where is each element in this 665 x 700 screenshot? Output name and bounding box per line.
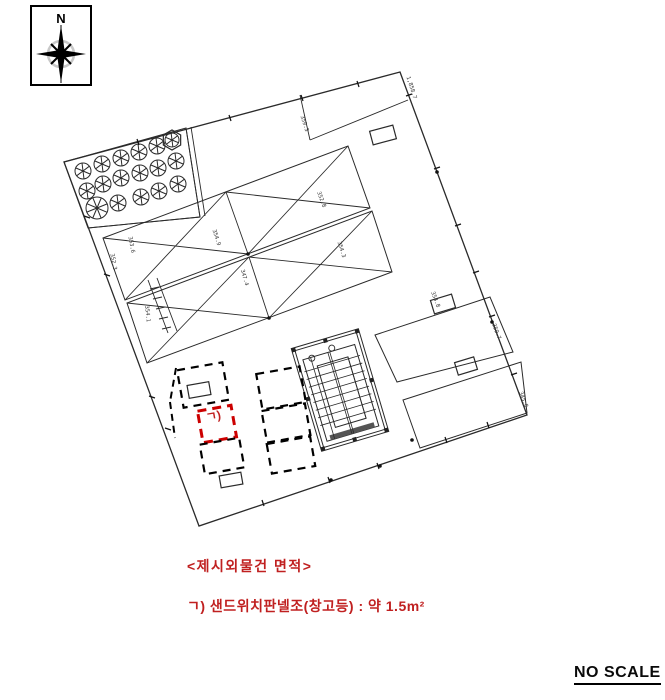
survey-dot [329, 478, 333, 482]
tree-icon [131, 144, 147, 160]
note-title: <제시외물건 면적> [187, 556, 312, 576]
tree-icon [94, 156, 110, 172]
tree-icon [79, 183, 95, 199]
plan-line [226, 192, 248, 254]
dimension-label: 354.9 [211, 229, 222, 247]
plan-line [310, 100, 408, 140]
tree-icon [75, 163, 91, 179]
small-structure [187, 382, 211, 399]
tree-icon [168, 153, 184, 169]
dashed-outbuilding-box [177, 362, 229, 407]
tree-icon [95, 176, 111, 192]
parcel-p2 [403, 362, 527, 448]
dimension-label: 347.4 [239, 269, 250, 287]
site-plan-drawing: 1,858.7359.3354.9352.8354.3347.4359.7345… [0, 0, 665, 700]
dimension-label: 354.1 [143, 305, 151, 322]
no-scale-label: NO SCALE [574, 664, 661, 685]
plan-line [159, 317, 168, 319]
main-building [291, 329, 389, 451]
tree-icon [132, 165, 148, 181]
tree-icon [86, 197, 108, 219]
plan-line [157, 278, 177, 331]
tree-band [64, 128, 200, 228]
small-structure [370, 125, 397, 145]
dimension-label: 359.7 [490, 323, 501, 341]
dashed-outbuilding-box [200, 438, 245, 474]
tree-icon [113, 170, 129, 186]
appraisal-site-plan-page: N 1,858.7359.3354.9352.8354.3347.4359.73… [0, 0, 665, 700]
small-structure [219, 472, 243, 488]
dimension-label: 353.6 [127, 236, 136, 253]
dimension-label: 352.8 [315, 191, 326, 209]
survey-dot [267, 316, 271, 320]
plan-line [125, 192, 226, 300]
parcel-p1 [375, 297, 513, 382]
dimension-label: 354.3 [336, 241, 347, 259]
tree-icon [133, 189, 149, 205]
survey-tick [104, 274, 110, 276]
tree-icon [150, 160, 166, 176]
plan-line [249, 257, 269, 318]
survey-dot [378, 464, 382, 468]
greenhouse-band-b [127, 211, 392, 363]
survey-dot [435, 170, 439, 174]
survey-dot [410, 438, 414, 442]
tree-icon [113, 150, 129, 166]
survey-tick [487, 422, 489, 428]
tree-icon [151, 183, 167, 199]
dashed-outbuilding-box [267, 436, 316, 473]
site-boundary [64, 72, 527, 526]
tree-icon [149, 138, 165, 154]
tree-icon [110, 195, 126, 211]
note-item: ㄱ) 샌드위치판넬조(창고등) : 약 1.5m² [187, 596, 425, 616]
dimension-label: 359.3 [299, 115, 310, 133]
dimension-label: 352.3 [109, 253, 118, 270]
survey-dot [246, 252, 250, 256]
tree-icon [165, 133, 179, 147]
tree-icon [170, 176, 186, 192]
dashed-outbuilding-box [262, 403, 311, 442]
dashed-segment [170, 402, 175, 438]
dimension-label: 345.8 [517, 391, 528, 409]
plan-line [248, 146, 348, 254]
survey-tick [165, 428, 171, 430]
red-annotation-label: ㄱ) [205, 408, 222, 424]
plan-line [88, 217, 200, 228]
dashed-segment [170, 368, 176, 402]
dimension-label: 354.8 [429, 291, 440, 309]
